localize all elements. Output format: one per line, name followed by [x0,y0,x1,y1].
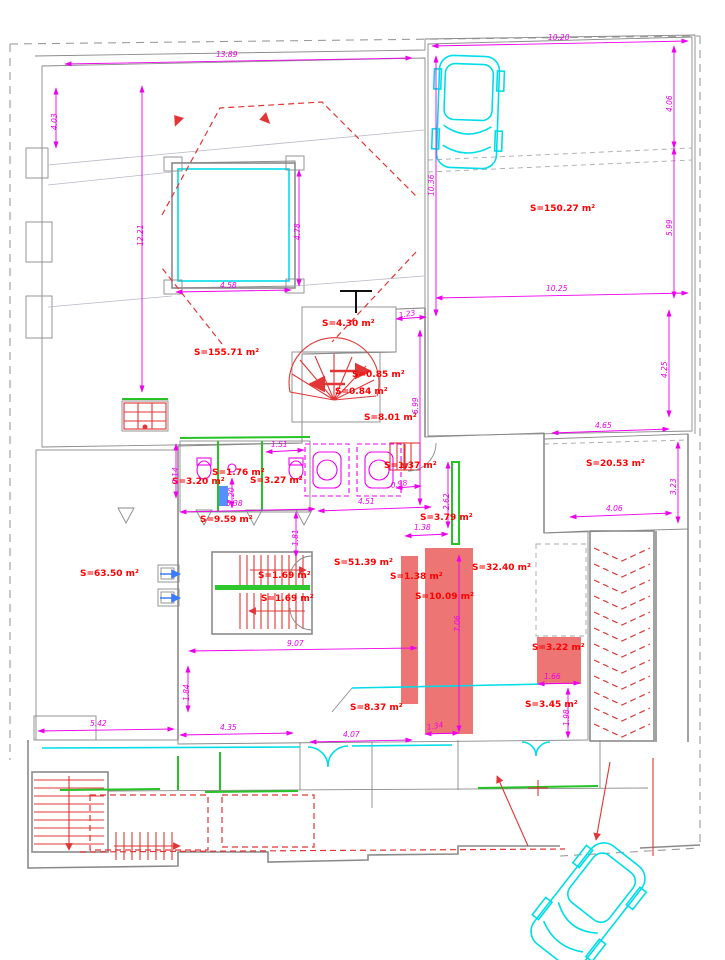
building-outline [35,35,695,434]
main-stair-icon [215,555,312,630]
car-icon-top [431,55,505,169]
region-blue-left [36,450,178,740]
plan-linework [0,0,725,960]
stairwell-main [212,552,312,634]
garage-dashed-lines [428,148,692,444]
courtyard [164,156,304,294]
region-red-corridor [425,548,473,734]
ramp-under-dashed [536,544,586,636]
region-blue-main [42,58,425,447]
region-ramp [590,531,654,741]
region-red-shaft [401,556,418,704]
region-orange-main [428,37,692,436]
annex-structures [28,740,700,868]
floor-plan-canvas: S=155.71 m²S=150.27 m²S=4.30 m²S=0.85 m²… [0,0,725,960]
small-stair-icon [122,399,168,431]
region-red-small [537,637,581,684]
door-triangles [118,443,545,712]
skylight-symbols [305,444,401,496]
region-orange-right [544,434,688,533]
tee-symbol [340,291,372,313]
route-arrows [497,762,610,846]
region-fills [26,37,692,744]
bathroom-fixtures [180,437,310,511]
spiral-stair-icon [289,338,379,400]
region-yellow-main [178,308,588,744]
mini-stair-icon [390,443,420,470]
elevator-symbols [158,565,180,606]
ramp-chevrons [594,548,650,737]
